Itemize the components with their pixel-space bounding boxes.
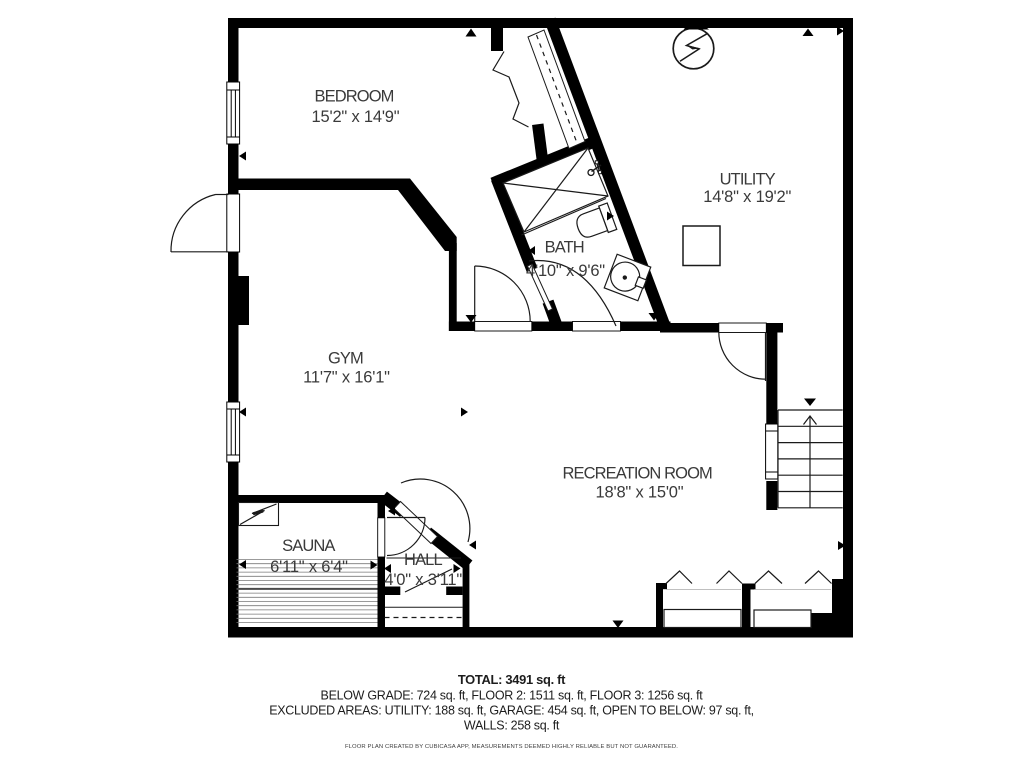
svg-text:BEDROOM: BEDROOM: [315, 88, 394, 106]
svg-text:14'8" x 19'2": 14'8" x 19'2": [703, 188, 791, 206]
svg-text:TOTAL: 3491 sq. ft: TOTAL: 3491 sq. ft: [458, 672, 566, 687]
svg-text:EXCLUDED AREAS: UTILITY: 188 s: EXCLUDED AREAS: UTILITY: 188 sq. ft, GAR…: [269, 704, 754, 718]
svg-text:GYM: GYM: [328, 350, 363, 368]
svg-text:WALLS: 258 sq. ft: WALLS: 258 sq. ft: [464, 719, 560, 733]
svg-text:RECREATION ROOM: RECREATION ROOM: [563, 465, 713, 483]
svg-text:HALL: HALL: [404, 551, 442, 569]
svg-text:18'8" x 15'0": 18'8" x 15'0": [596, 484, 684, 502]
svg-text:4'10" x 9'6": 4'10" x 9'6": [526, 262, 605, 280]
svg-text:11'7" x 16'1": 11'7" x 16'1": [303, 369, 390, 387]
svg-text:BATH: BATH: [545, 239, 584, 257]
svg-text:UTILITY: UTILITY: [720, 171, 776, 189]
svg-text:BELOW GRADE: 724 sq. ft, FLOOR: BELOW GRADE: 724 sq. ft, FLOOR 2: 1511 s…: [321, 689, 704, 703]
svg-text:6'11" x 6'4": 6'11" x 6'4": [270, 558, 348, 576]
svg-text:SAUNA: SAUNA: [282, 537, 335, 555]
svg-text:15'2" x 14'9": 15'2" x 14'9": [312, 108, 400, 126]
svg-text:4'0" x 3'11": 4'0" x 3'11": [384, 571, 462, 589]
svg-text:FLOOR PLAN CREATED BY CUBICASA: FLOOR PLAN CREATED BY CUBICASA APP, MEAS…: [345, 744, 678, 750]
